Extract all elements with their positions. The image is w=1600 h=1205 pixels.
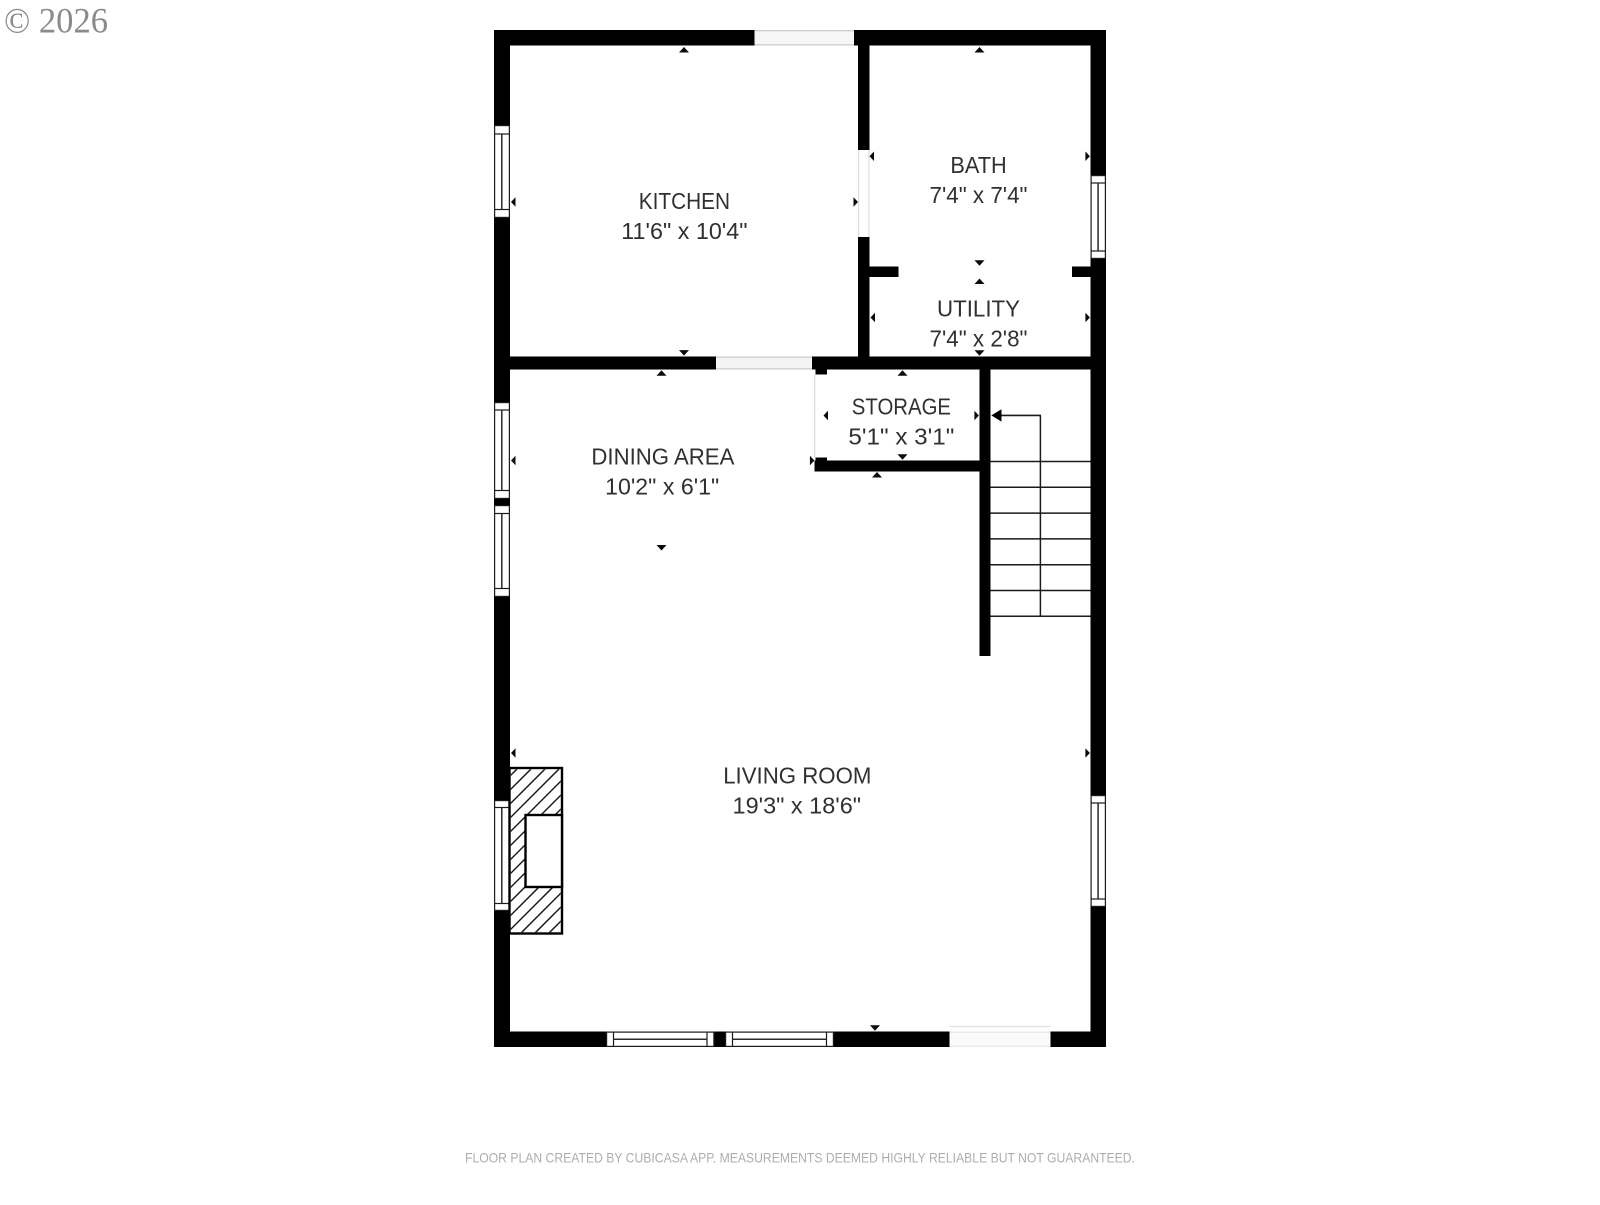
svg-text:UTILITY: UTILITY: [937, 296, 1020, 322]
svg-text:FLOOR PLAN CREATED BY CUBICASA: FLOOR PLAN CREATED BY CUBICASA APP. MEAS…: [465, 1150, 1135, 1166]
svg-text:10'2" x 6'1": 10'2" x 6'1": [605, 474, 719, 500]
svg-text:11'6" x 10'4": 11'6" x 10'4": [621, 218, 747, 244]
svg-text:BATH: BATH: [950, 152, 1006, 178]
svg-text:STORAGE: STORAGE: [852, 394, 951, 420]
svg-text:DINING AREA: DINING AREA: [591, 444, 734, 470]
svg-text:LIVING ROOM: LIVING ROOM: [723, 763, 871, 789]
svg-text:KITCHEN: KITCHEN: [639, 188, 730, 214]
svg-text:5'1" x 3'1": 5'1" x 3'1": [848, 424, 954, 450]
svg-text:19'3" x 18'6": 19'3" x 18'6": [733, 793, 862, 819]
svg-text:© 2026: © 2026: [4, 1, 108, 41]
svg-text:7'4" x 7'4": 7'4" x 7'4": [930, 182, 1028, 208]
svg-text:7'4" x 2'8": 7'4" x 2'8": [930, 326, 1028, 352]
